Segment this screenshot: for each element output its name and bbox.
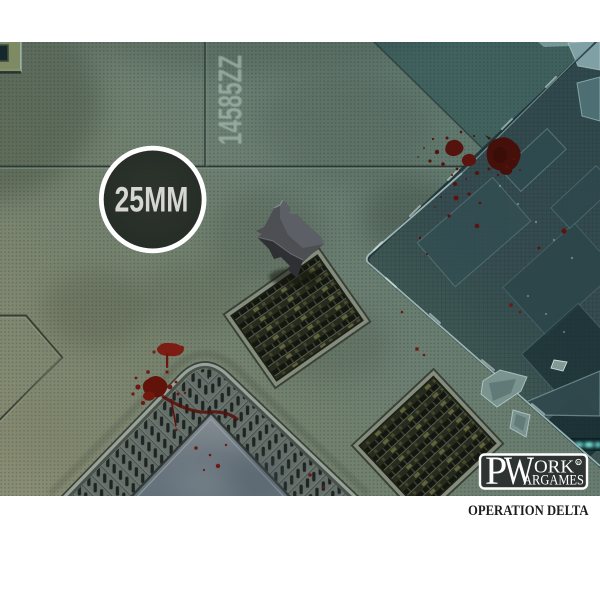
svg-text:25MM: 25MM [115,180,189,219]
svg-text:ARGAMES: ARGAMES [523,473,584,489]
svg-text:14585ZZ: 14585ZZ [212,55,249,145]
